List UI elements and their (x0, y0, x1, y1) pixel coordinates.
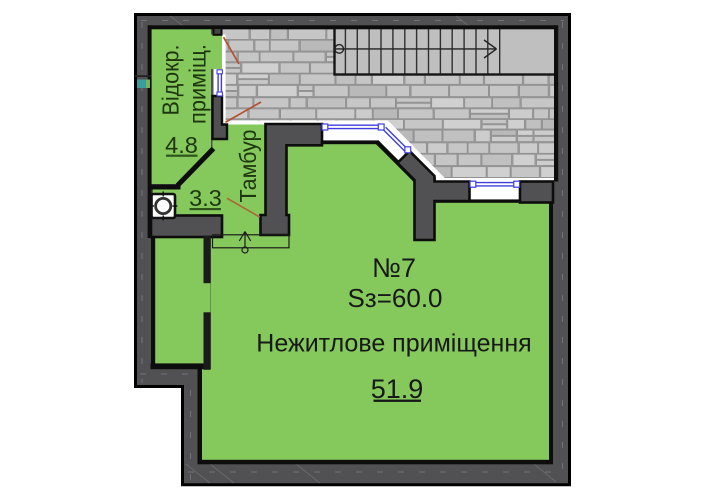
svg-text:4.8: 4.8 (165, 132, 198, 158)
svg-text:приміщ.: приміщ. (185, 44, 211, 124)
svg-text:Відокр.: Відокр. (158, 45, 184, 116)
svg-text:3.3: 3.3 (189, 185, 222, 211)
svg-text:51.9: 51.9 (371, 374, 424, 404)
svg-text:Тамбур: Тамбур (235, 130, 261, 203)
svg-text:Sз=60.0: Sз=60.0 (347, 283, 442, 313)
svg-text:№7: №7 (372, 253, 416, 283)
svg-text:Нежитлове приміщення: Нежитлове приміщення (256, 330, 531, 358)
